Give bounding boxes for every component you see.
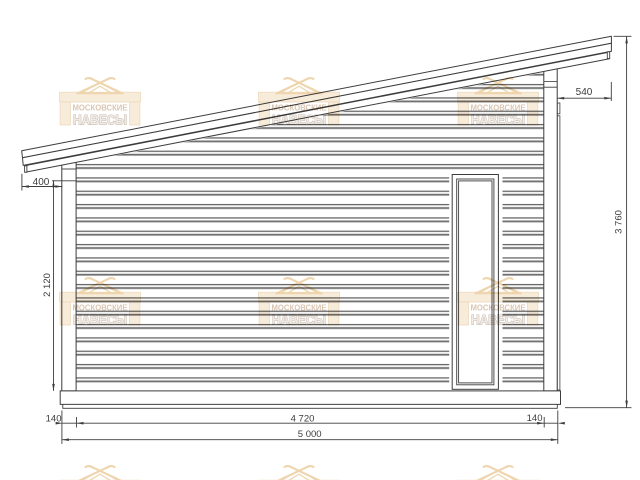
svg-text:540: 540 [576, 87, 593, 98]
svg-text:3 760: 3 760 [614, 210, 625, 234]
svg-text:5 000: 5 000 [298, 429, 322, 440]
svg-text:140: 140 [46, 413, 62, 424]
svg-text:400: 400 [33, 177, 50, 188]
svg-text:2 120: 2 120 [42, 273, 53, 297]
svg-text:МОСКОВСКИЕ: МОСКОВСКИЕ [73, 103, 128, 113]
svg-text:4 720: 4 720 [291, 414, 315, 425]
svg-text:НАВЕСЫ: НАВЕСЫ [73, 112, 127, 127]
svg-text:140: 140 [527, 413, 543, 424]
